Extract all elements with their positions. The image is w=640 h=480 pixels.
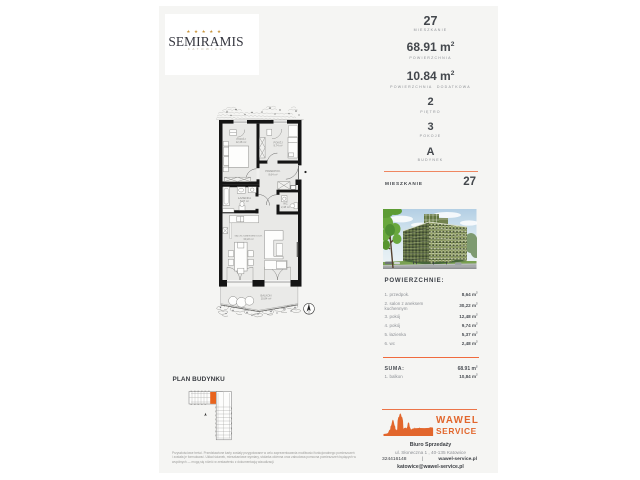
svg-text:8,64 m²: 8,64 m² (268, 172, 277, 176)
svg-text:2,48 m²: 2,48 m² (281, 205, 290, 209)
svg-text:5,37 m²: 5,37 m² (240, 199, 249, 203)
svg-text:9,74 m²: 9,74 m² (273, 144, 282, 148)
svg-text:12,48 m²: 12,48 m² (236, 140, 247, 144)
svg-text:10,84 m²: 10,84 m² (261, 297, 272, 301)
svg-text:30,22 m²: 30,22 m² (243, 237, 253, 241)
